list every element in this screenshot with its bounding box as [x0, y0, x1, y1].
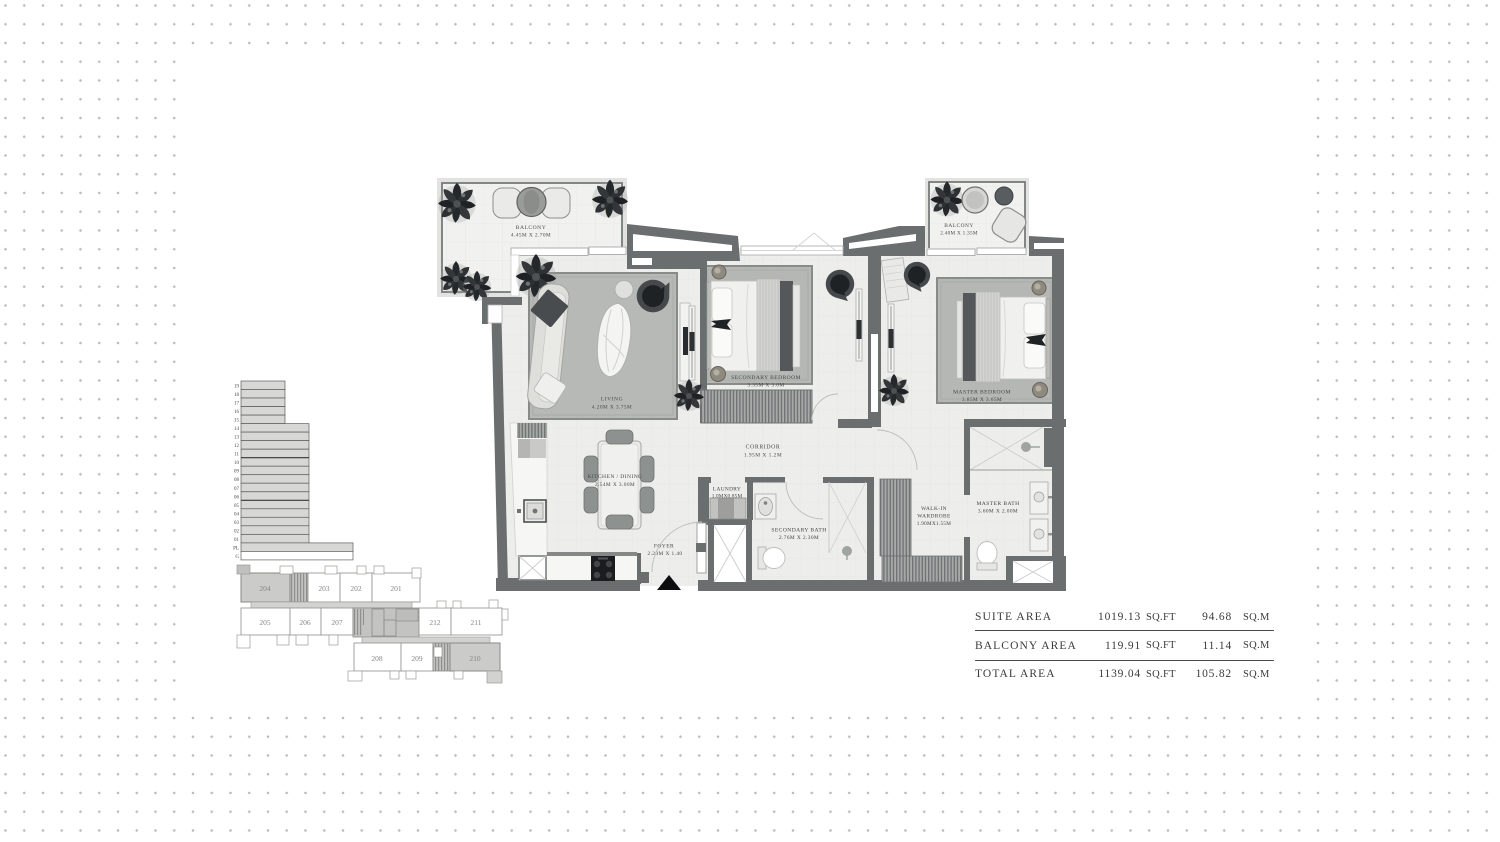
svg-text:206: 206 [299, 618, 311, 627]
svg-text:2.54M X 3.00M: 2.54M X 3.00M [595, 482, 635, 488]
svg-text:09: 09 [234, 470, 240, 475]
svg-text:BALCONY: BALCONY [944, 223, 974, 229]
svg-text:WALK-IN: WALK-IN [921, 506, 947, 512]
svg-text:08: 08 [234, 478, 240, 483]
svg-text:11: 11 [234, 453, 239, 458]
svg-text:SECONDARY BATH: SECONDARY BATH [771, 528, 826, 534]
svg-text:202: 202 [350, 584, 362, 593]
svg-text:MASTER BATH: MASTER BATH [976, 501, 1019, 507]
svg-text:G: G [235, 555, 239, 560]
svg-text:4.45M X 2.70M: 4.45M X 2.70M [511, 233, 551, 239]
svg-text:2.76M X 2.30M: 2.76M X 2.30M [779, 535, 819, 541]
svg-text:12: 12 [234, 444, 240, 449]
svg-text:17: 17 [234, 402, 240, 407]
svg-text:WARDROBE: WARDROBE [917, 514, 951, 520]
svg-text:2.20M X 1.40: 2.20M X 1.40 [647, 551, 682, 557]
svg-text:18: 18 [234, 393, 240, 398]
svg-text:1.95M X 1.2M: 1.95M X 1.2M [744, 453, 782, 459]
svg-text:06: 06 [234, 495, 240, 500]
svg-text:07: 07 [234, 487, 240, 492]
svg-text:MASTER BEDROOM: MASTER BEDROOM [953, 390, 1011, 396]
svg-text:203: 203 [318, 584, 330, 593]
svg-text:212: 212 [429, 618, 441, 627]
svg-text:KITCHEN / DINING: KITCHEN / DINING [587, 474, 642, 480]
svg-text:05: 05 [234, 504, 240, 509]
svg-text:02: 02 [234, 529, 240, 534]
svg-text:SECONDARY BEDROOM: SECONDARY BEDROOM [731, 375, 801, 381]
svg-text:CORRIDOR: CORRIDOR [746, 445, 781, 451]
svg-text:2.40M X 1.35M: 2.40M X 1.35M [940, 231, 978, 237]
svg-text:3.60M X 2.00M: 3.60M X 2.00M [978, 509, 1018, 515]
svg-text:LIVING: LIVING [601, 397, 623, 403]
svg-text:3.35M X 3.0M: 3.35M X 3.0M [747, 383, 784, 389]
svg-text:204: 204 [259, 584, 271, 593]
svg-text:201: 201 [390, 584, 402, 593]
svg-text:4.20M X 3.75M: 4.20M X 3.75M [592, 405, 632, 411]
svg-text:LAUNDRY: LAUNDRY [713, 487, 741, 493]
svg-text:205: 205 [259, 618, 271, 627]
svg-text:14: 14 [234, 427, 240, 432]
svg-text:FOYER: FOYER [654, 544, 674, 550]
svg-text:207: 207 [331, 618, 343, 627]
svg-text:04: 04 [234, 512, 240, 517]
svg-text:3.85M X 3.65M: 3.85M X 3.65M [962, 397, 1002, 403]
svg-text:208: 208 [371, 654, 383, 663]
svg-text:BALCONY: BALCONY [516, 225, 547, 231]
svg-text:19: 19 [234, 385, 240, 390]
svg-text:211: 211 [471, 618, 482, 627]
svg-text:15: 15 [234, 419, 240, 424]
svg-text:210: 210 [469, 654, 481, 663]
svg-text:1.0MX0.85M: 1.0MX0.85M [712, 494, 743, 500]
svg-text:16: 16 [234, 410, 240, 415]
svg-text:13: 13 [234, 436, 240, 441]
svg-text:1.90MX1.55M: 1.90MX1.55M [917, 521, 952, 527]
svg-text:01: 01 [234, 538, 240, 543]
svg-text:209: 209 [411, 654, 423, 663]
svg-text:PL: PL [233, 546, 239, 551]
svg-text:03: 03 [234, 521, 240, 526]
svg-text:10: 10 [234, 461, 240, 466]
